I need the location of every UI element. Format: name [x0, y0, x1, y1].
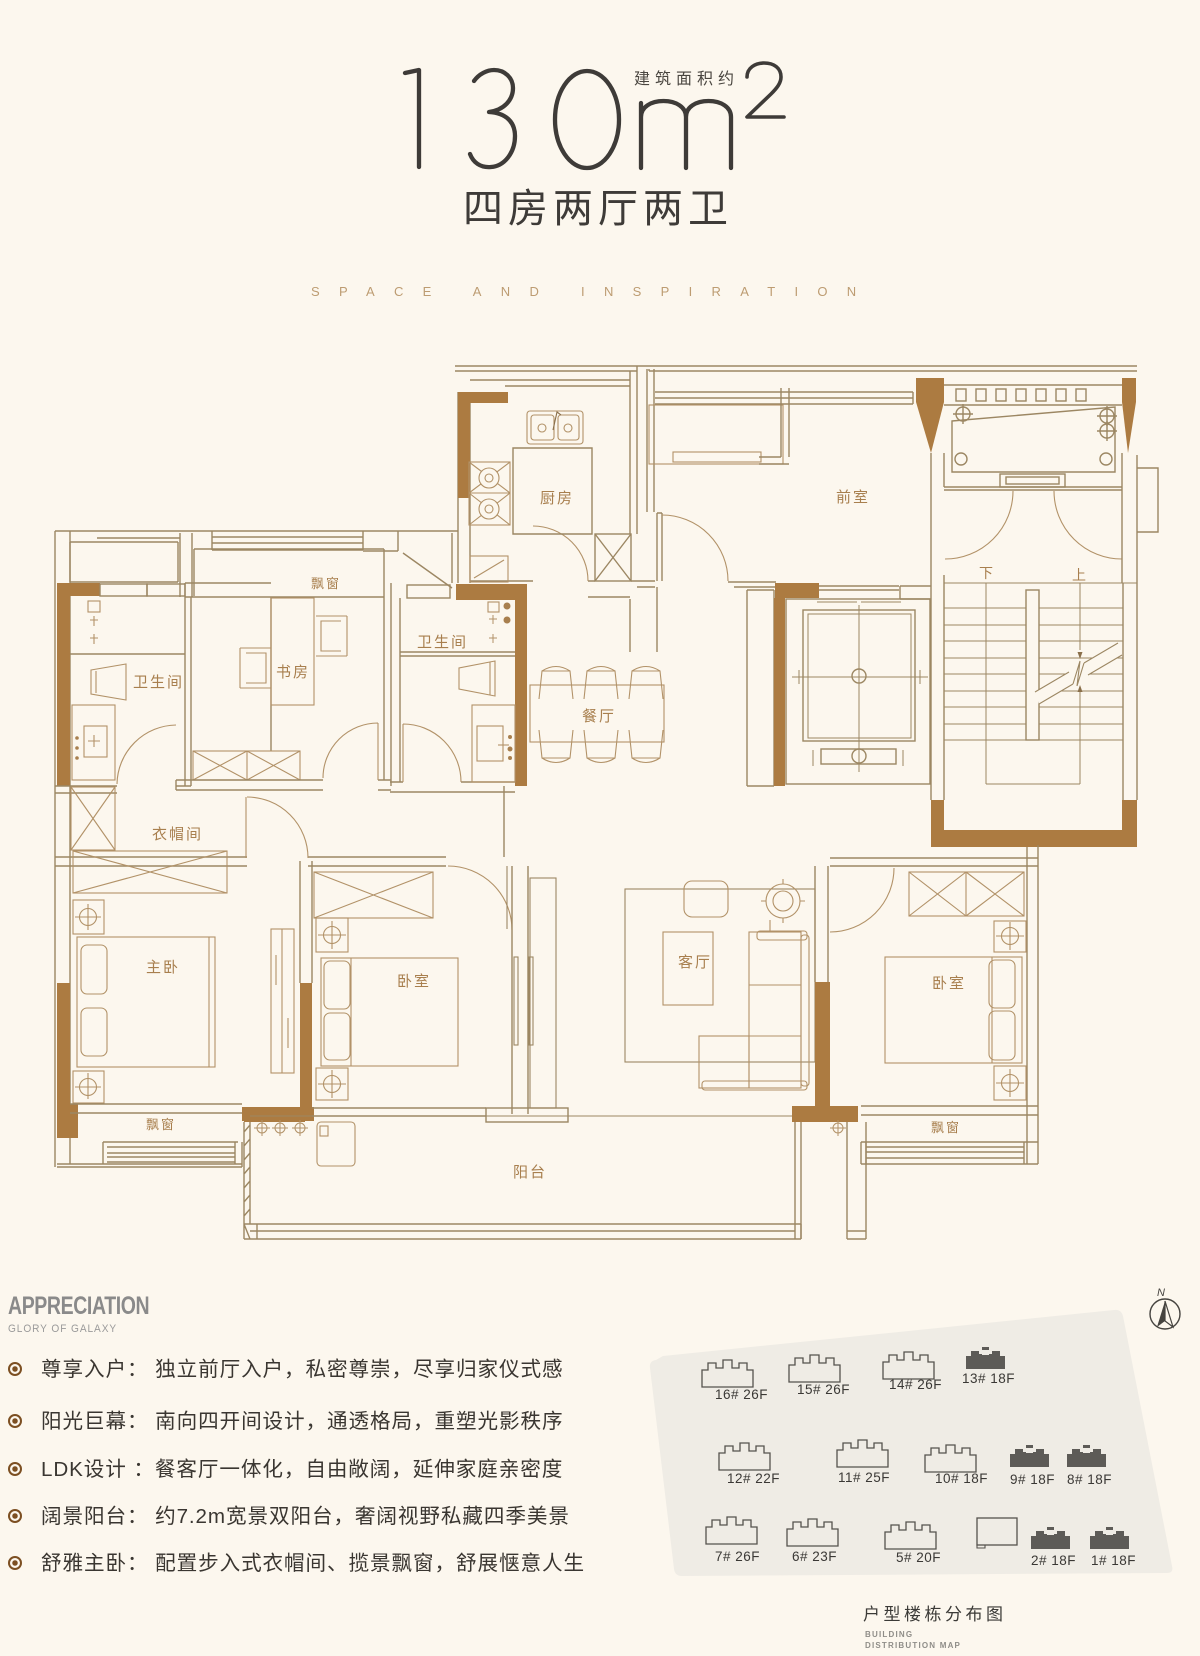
- svg-text:14# 26F: 14# 26F: [889, 1377, 942, 1392]
- svg-text:8# 18F: 8# 18F: [1067, 1472, 1112, 1487]
- svg-text:15# 26F: 15# 26F: [797, 1382, 850, 1397]
- svg-text:书房: 书房: [276, 664, 310, 681]
- svg-text:前室: 前室: [836, 489, 870, 506]
- svg-text:N: N: [1157, 1287, 1165, 1299]
- svg-text:7# 26F: 7# 26F: [715, 1549, 760, 1564]
- svg-text:飘窗: 飘窗: [931, 1120, 961, 1135]
- svg-text:阳台: 阳台: [513, 1164, 547, 1181]
- svg-text:餐厅: 餐厅: [582, 708, 616, 725]
- svg-text:卧室: 卧室: [932, 975, 966, 992]
- svg-text:主卧: 主卧: [146, 959, 180, 976]
- svg-text:下: 下: [979, 565, 995, 581]
- svg-text:DISTRIBUTION MAP: DISTRIBUTION MAP: [865, 1641, 961, 1650]
- svg-text:上: 上: [1072, 567, 1088, 583]
- svg-text:6# 23F: 6# 23F: [792, 1549, 837, 1564]
- svg-text:户型楼栋分布图: 户型楼栋分布图: [863, 1605, 1007, 1624]
- svg-text:卫生间: 卫生间: [133, 674, 184, 691]
- svg-text:卫生间: 卫生间: [417, 634, 468, 651]
- svg-text:BUILDING: BUILDING: [865, 1630, 913, 1639]
- svg-text:客厅: 客厅: [678, 954, 712, 971]
- svg-text:2# 18F: 2# 18F: [1031, 1553, 1076, 1568]
- svg-text:飘窗: 飘窗: [311, 576, 341, 591]
- svg-text:5# 20F: 5# 20F: [896, 1550, 941, 1565]
- svg-text:衣帽间: 衣帽间: [152, 826, 203, 843]
- svg-text:10# 18F: 10# 18F: [935, 1471, 988, 1486]
- svg-text:16# 26F: 16# 26F: [715, 1387, 768, 1402]
- svg-text:飘窗: 飘窗: [146, 1117, 176, 1132]
- svg-text:厨房: 厨房: [540, 490, 574, 507]
- svg-text:9# 18F: 9# 18F: [1010, 1472, 1055, 1487]
- svg-text:1# 18F: 1# 18F: [1091, 1553, 1136, 1568]
- svg-text:11# 25F: 11# 25F: [838, 1470, 890, 1485]
- svg-text:卧室: 卧室: [397, 973, 431, 990]
- svg-text:12# 22F: 12# 22F: [727, 1471, 780, 1486]
- svg-text:13# 18F: 13# 18F: [962, 1371, 1015, 1386]
